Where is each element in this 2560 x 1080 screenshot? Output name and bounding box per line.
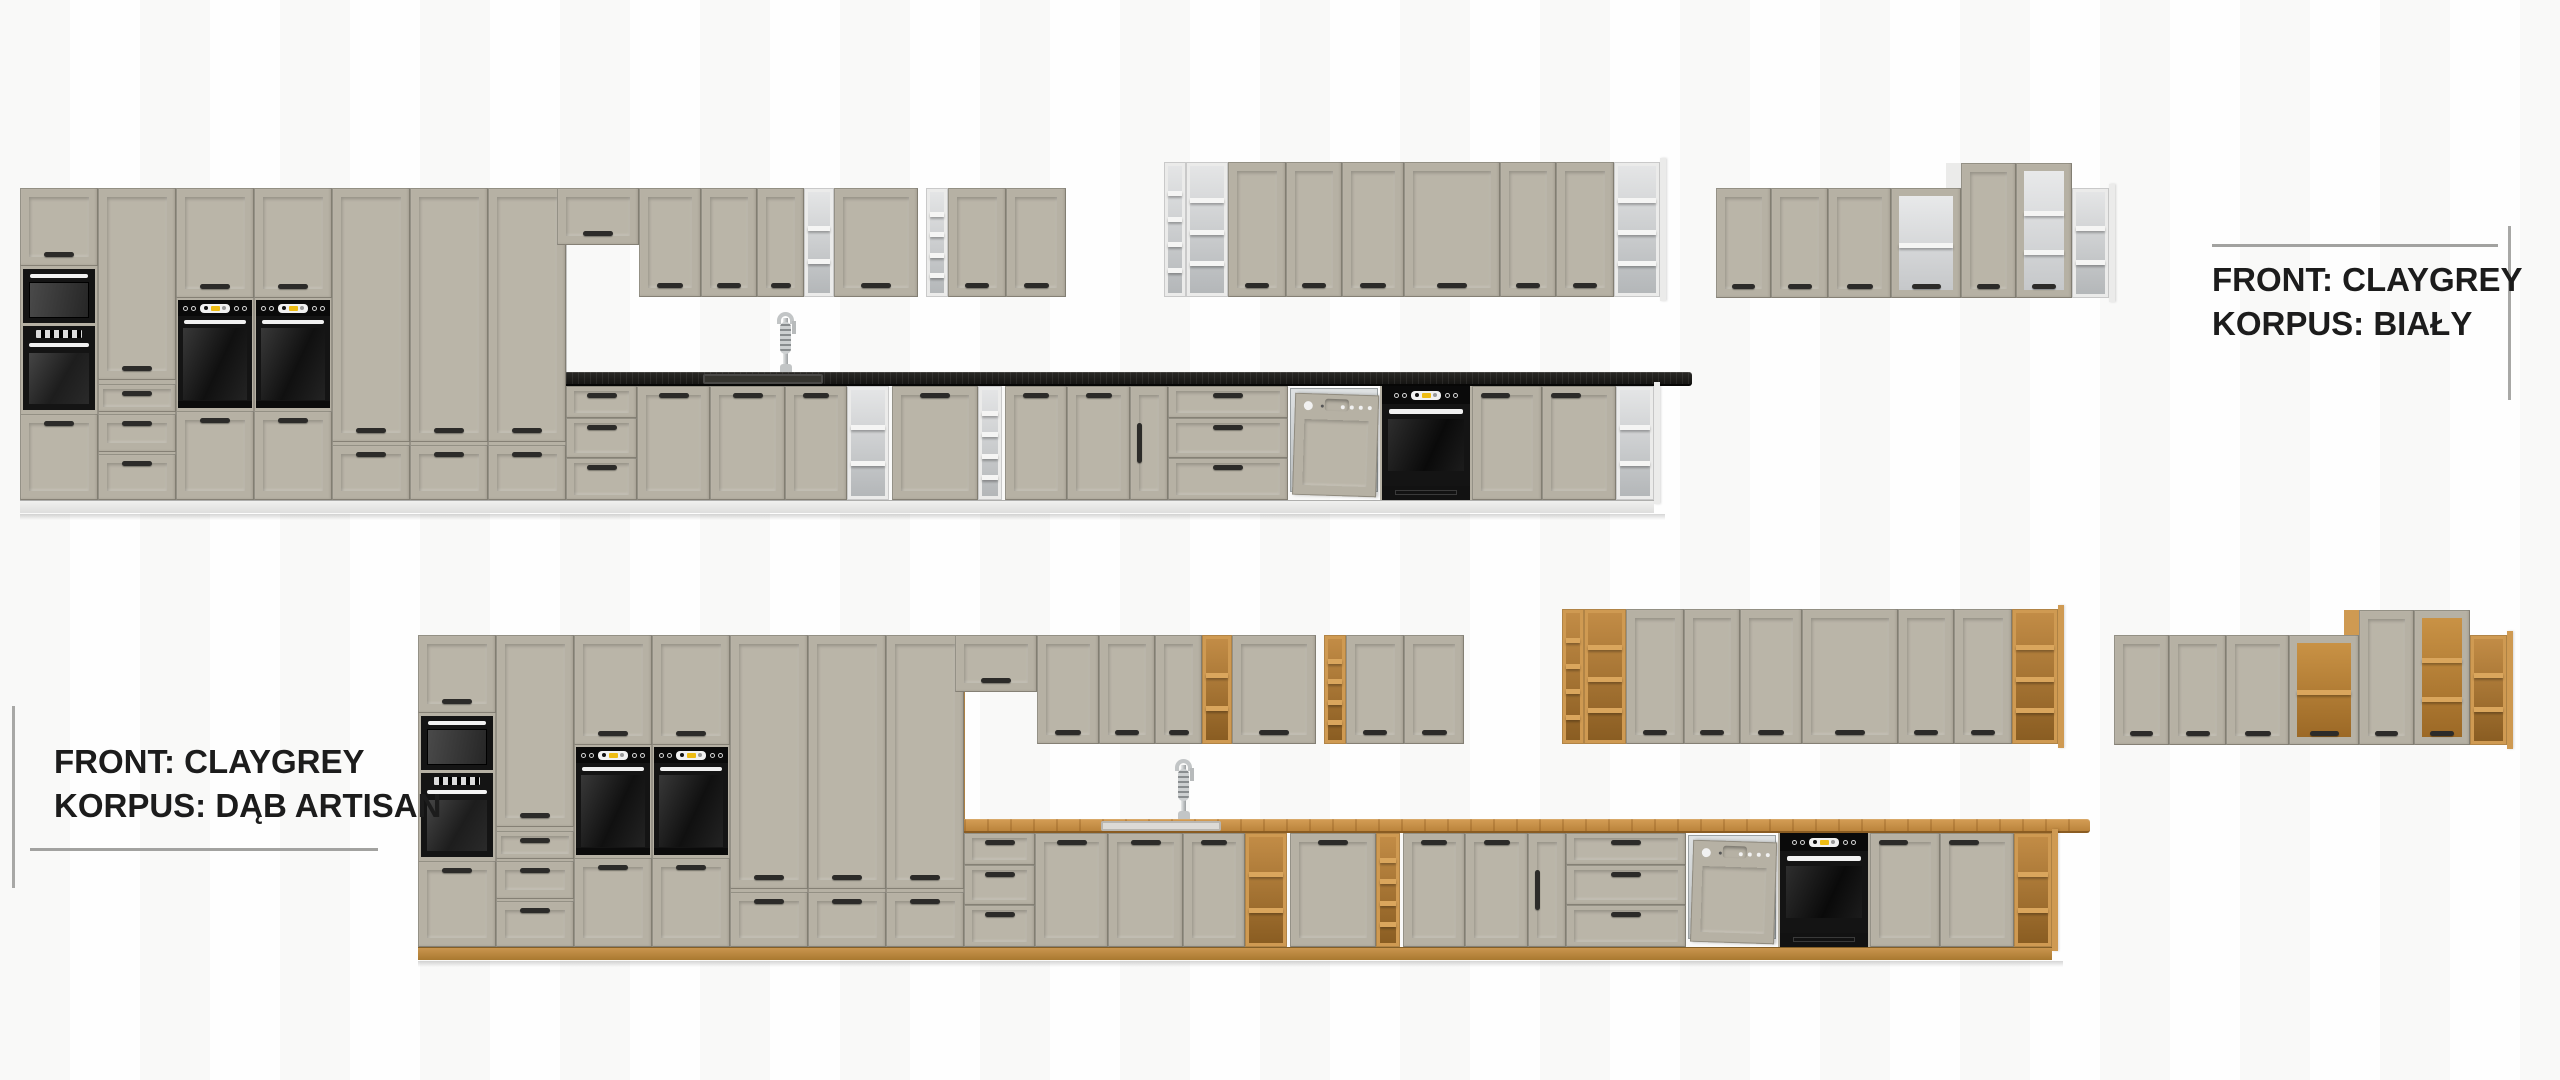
base-cabinet <box>710 386 785 500</box>
dishwasher-recess <box>1723 846 1747 859</box>
door-panel <box>1351 171 1395 288</box>
tall-oven-housing <box>574 635 652 947</box>
display-dot <box>620 753 624 757</box>
cabinet-door <box>808 635 886 889</box>
oven-housing <box>1380 386 1472 500</box>
shelf-board <box>1328 700 1342 705</box>
corner-open-shelf <box>2470 635 2507 745</box>
control-knob <box>1843 840 1848 845</box>
shelf-board <box>851 425 885 430</box>
plinth <box>418 947 964 960</box>
door-panel <box>1413 171 1491 288</box>
display-timer <box>211 306 220 311</box>
cabinet-handle <box>442 868 472 873</box>
drawer-front <box>1566 833 1686 865</box>
shelf-board <box>1328 659 1342 664</box>
cabinet-handle <box>587 393 617 398</box>
wall-cabinet <box>1802 609 1898 744</box>
dishwasher-knob <box>1304 401 1313 410</box>
base-cabinet <box>892 386 978 500</box>
cabinet-handle <box>1611 872 1641 877</box>
plinth <box>566 500 1654 513</box>
shelf-board <box>1190 261 1224 266</box>
door-panel <box>710 197 748 288</box>
dishwasher-panel <box>1302 419 1368 487</box>
door-panel <box>1749 618 1793 735</box>
wall-cabinet <box>834 188 918 297</box>
cabinet-handle <box>1086 393 1112 398</box>
wall-cabinet <box>2226 635 2289 745</box>
drawer-front <box>496 861 574 899</box>
cabinet-door <box>488 445 566 500</box>
shelf-interior <box>1249 837 1283 943</box>
door-panel <box>29 197 89 257</box>
cabinet-handle <box>1245 283 1269 288</box>
door-panel <box>1725 197 1762 289</box>
cabinet-handle <box>1055 730 1081 735</box>
cabinet-handle <box>676 731 706 736</box>
dishwasher-dot <box>1321 405 1324 408</box>
shelf-board <box>1190 198 1224 203</box>
shelf-board <box>982 411 998 416</box>
kitchen-set-korpus-dab-artisan <box>418 609 2518 969</box>
cabinet-door <box>730 635 808 889</box>
oven-drawer-strip <box>1780 933 1868 947</box>
dishwasher-button <box>1350 405 1354 409</box>
base-cabinet <box>1035 833 1108 947</box>
wall-cabinet <box>1954 609 2012 744</box>
cabinet-door <box>488 188 566 442</box>
wine-rack-cabinet <box>1562 609 1584 744</box>
drawer-front <box>566 418 637 458</box>
door-panel <box>2178 644 2217 736</box>
wall-cabinet <box>955 635 1037 692</box>
control-knob <box>1792 840 1797 845</box>
shelf-board <box>808 226 830 231</box>
shelf-board <box>2016 708 2054 713</box>
cabinet-door <box>410 188 488 442</box>
wall-cabinet <box>757 188 804 297</box>
cabinet-door <box>574 635 652 745</box>
cabinet-door <box>176 411 254 500</box>
cabinet-door <box>98 188 176 380</box>
wall-cabinet <box>1828 188 1891 298</box>
base-cabinet <box>785 386 847 500</box>
shelf-board <box>1588 677 1622 682</box>
cabinet-handle <box>2245 731 2271 736</box>
base-cabinet <box>1183 833 1245 947</box>
shelf-interior <box>930 192 944 293</box>
shelf-board <box>1190 230 1224 235</box>
plinth <box>20 500 566 513</box>
oven-window <box>581 775 645 847</box>
dishwasher-button <box>1757 853 1761 857</box>
door-panel <box>427 644 487 704</box>
door-panel <box>1237 171 1277 288</box>
drawer-front <box>566 458 637 500</box>
base-cabinet <box>637 386 710 500</box>
door-panel <box>2368 619 2405 736</box>
control-display <box>1411 391 1441 400</box>
door-panel <box>185 420 245 491</box>
cabinet-door <box>176 188 254 298</box>
base-drawer-cabinet <box>964 833 1035 947</box>
oven-window <box>29 353 89 404</box>
shelf-board <box>1168 191 1182 196</box>
cabinet-handle <box>910 875 940 880</box>
door-panel <box>1551 395 1607 491</box>
shelf-interior <box>1168 166 1182 293</box>
corner-open-shelf <box>2014 833 2052 947</box>
tall-pantry-cabinet <box>98 188 176 500</box>
glass-display-cabinet <box>2289 635 2359 745</box>
cabinet-handle <box>1259 730 1289 735</box>
base-drawer-cabinet <box>566 386 637 500</box>
dishwasher-button <box>1766 853 1770 857</box>
display-dot <box>282 306 286 310</box>
oven-bottom-band <box>654 848 728 855</box>
door-panel <box>1295 171 1333 288</box>
cabinet-handle <box>985 872 1015 877</box>
cabinet-handle <box>1360 283 1386 288</box>
kitchen-set-korpus-bialy <box>20 162 2120 522</box>
built-in-oven <box>178 300 252 408</box>
door-panel <box>2123 644 2160 736</box>
side-panel <box>2109 184 2115 302</box>
cabinet-handle <box>200 418 230 423</box>
shelf-board <box>1249 908 1283 913</box>
shelf-board <box>2297 690 2351 695</box>
wall-cabinet <box>1037 635 1099 744</box>
oven-window <box>659 775 723 847</box>
wall-cabinet <box>1556 162 1614 297</box>
door-panel <box>1299 842 1367 938</box>
side-panel <box>1660 158 1666 301</box>
shelf-board <box>1899 243 1953 248</box>
display-timer <box>1820 840 1829 845</box>
door-panel <box>661 867 721 938</box>
drawer-front <box>496 901 574 947</box>
display-dot <box>204 306 208 310</box>
cabinet-handle <box>1551 393 1581 398</box>
dishwasher-button <box>1368 406 1372 410</box>
open-shelf-cabinet <box>804 188 834 297</box>
dishwasher-recess <box>1325 399 1349 412</box>
oven-handle-bar <box>184 320 246 324</box>
oven-window <box>1786 866 1862 918</box>
shelf-board <box>2474 707 2503 712</box>
cabinet-handle <box>122 421 152 426</box>
drawer-front <box>964 865 1035 905</box>
cabinet-door <box>652 858 730 947</box>
wine-rack-cabinet <box>1164 162 1186 297</box>
wine-rack-cabinet <box>978 386 1002 500</box>
corner-open-shelf <box>1614 162 1660 297</box>
glass-interior <box>2422 618 2462 737</box>
door-panel <box>1192 842 1236 938</box>
drawer-front <box>98 384 176 412</box>
control-knob <box>1453 393 1458 398</box>
shelf-board <box>1168 268 1182 273</box>
drawer-front <box>1566 865 1686 905</box>
door-panel <box>817 644 877 880</box>
control-knob <box>589 753 594 758</box>
cabinet-handle <box>803 393 829 398</box>
door-panel <box>895 644 955 880</box>
base-cabinet <box>1108 833 1183 947</box>
cabinet-door <box>730 892 808 947</box>
cabinet-handle <box>1912 284 1941 289</box>
wall-cabinet <box>1716 188 1771 298</box>
cabinet-handle <box>2430 731 2454 736</box>
cabinet-door <box>808 892 886 947</box>
door-panel <box>263 420 323 491</box>
cabinet-door <box>332 445 410 500</box>
display-dot <box>1831 840 1835 844</box>
door-panel <box>1413 644 1455 735</box>
side-panel <box>2058 605 2064 748</box>
cabinet-handle <box>1137 423 1142 463</box>
door-panel <box>719 395 776 491</box>
cabinet-door <box>418 635 496 713</box>
faucet-base <box>1178 811 1190 819</box>
drawer-front <box>1168 386 1288 418</box>
tall-appliance-column <box>20 188 98 500</box>
door-panel <box>2235 644 2280 736</box>
shelf-board <box>1328 720 1342 725</box>
display-timer <box>289 306 298 311</box>
display-dot <box>680 753 684 757</box>
control-knob <box>261 306 266 311</box>
display-timer <box>609 753 618 758</box>
built-in-oven <box>256 300 330 408</box>
label-korpus-line: KORPUS: DĄB ARTISAN <box>54 784 441 828</box>
corner-open-shelf <box>1616 386 1654 500</box>
variant-label-dab-artisan: FRONT: CLAYGREY KORPUS: DĄB ARTISAN <box>54 740 441 828</box>
door-panel <box>1117 842 1174 938</box>
door-panel <box>1811 618 1889 735</box>
drawer-vent <box>1395 490 1457 495</box>
cabinet-handle <box>733 393 763 398</box>
wall-cabinet <box>639 188 701 297</box>
cabinet-handle <box>1484 840 1510 845</box>
faucet <box>769 312 799 372</box>
oven-control-panel <box>256 300 330 316</box>
drawer-front <box>98 454 176 500</box>
cabinet-handle <box>1024 283 1049 288</box>
base-drawer-cabinet <box>1566 833 1686 947</box>
oven-handle-bar <box>660 767 722 771</box>
tall-cabinet <box>332 188 410 500</box>
cabinet-handle <box>1169 730 1189 735</box>
cabinet-handle <box>1115 730 1139 735</box>
shelf-board <box>982 475 998 480</box>
cabinet-handle <box>587 465 617 470</box>
control-knob <box>1800 840 1805 845</box>
door-panel <box>1837 197 1882 289</box>
shelf-board <box>1566 664 1580 669</box>
cabinet-handle <box>754 875 784 880</box>
shelf-board <box>1380 858 1396 863</box>
control-knob <box>667 753 672 758</box>
door-panel <box>1241 644 1307 735</box>
tall-oven-housing <box>254 188 332 500</box>
cabinet-handle <box>1131 840 1161 845</box>
cabinet-handle <box>676 865 706 870</box>
open-shelf-cabinet <box>1186 162 1228 297</box>
shelf-board <box>1206 673 1228 678</box>
drawer-front <box>964 905 1035 947</box>
shelf-board <box>930 253 944 258</box>
cabinet-handle <box>44 421 74 426</box>
cabinet-handle <box>200 284 230 289</box>
control-knob <box>320 306 325 311</box>
sink <box>703 374 823 384</box>
oven-handle-bar <box>582 767 644 771</box>
wall-cabinet <box>1500 162 1556 297</box>
door-panel <box>107 197 167 371</box>
product-image-kitchen-sets: FRONT: CLAYGREY KORPUS: BIAŁY FRONT: CLA… <box>0 0 2560 1080</box>
glass-display-cabinet <box>2414 610 2470 745</box>
cabinet-handle <box>832 875 862 880</box>
faucet-spout <box>1190 768 1194 781</box>
cabinet-door <box>418 861 496 947</box>
drawer-front <box>566 386 637 418</box>
built-in-oven <box>23 326 95 410</box>
shelf-board <box>1328 679 1342 684</box>
wall-cabinet <box>948 188 1006 297</box>
cabinet-handle <box>2186 731 2210 736</box>
dishwasher-button <box>1748 852 1752 856</box>
cabinet-handle <box>1835 730 1865 735</box>
control-knob <box>632 753 637 758</box>
door-panel <box>107 463 167 491</box>
cabinet-handle <box>512 452 542 457</box>
cabinet-door <box>886 892 964 947</box>
base-cabinet <box>1528 833 1566 947</box>
drawer-vent <box>1793 937 1855 942</box>
wall-cabinet <box>701 188 757 297</box>
glass-display-cabinet <box>1891 188 1961 298</box>
display-dot <box>1415 393 1419 397</box>
control-knob <box>312 306 317 311</box>
label-rule-horizontal-bottom <box>30 848 378 851</box>
door-panel <box>957 197 997 288</box>
open-shelf-cabinet <box>1584 609 1626 744</box>
faucet-spring-coil <box>780 322 791 354</box>
cabinet-handle <box>1023 393 1049 398</box>
wall-cabinet <box>1228 162 1286 297</box>
cabinet-handle <box>1758 730 1784 735</box>
base-cabinet <box>1290 833 1376 947</box>
cabinet-handle <box>1879 840 1908 845</box>
cabinet-handle <box>1201 840 1227 845</box>
control-display <box>200 304 230 313</box>
microwave-handle-bar <box>30 274 88 278</box>
open-shelf-cabinet <box>1245 833 1287 947</box>
door-panel <box>1963 618 2003 735</box>
cabinet-handle <box>659 393 689 398</box>
base-cabinet <box>1005 386 1067 500</box>
control-knob <box>269 306 274 311</box>
control-display <box>598 751 628 760</box>
cabinet-door <box>496 635 574 827</box>
wine-rack-cabinet <box>926 188 948 297</box>
cabinet-handle <box>754 899 784 904</box>
shelf-board <box>808 259 830 264</box>
cabinet-handle <box>356 428 386 433</box>
wall-cabinet <box>2359 610 2414 745</box>
cabinet-handle <box>442 699 472 704</box>
shelf-board <box>1588 645 1622 650</box>
cabinet-door <box>332 188 410 442</box>
drawer-front <box>496 831 574 859</box>
oven-window <box>183 328 247 400</box>
shelf-interior <box>2474 639 2503 741</box>
wall-cabinet <box>1006 188 1066 297</box>
side-panel <box>2052 829 2058 951</box>
wall-cabinet <box>2169 635 2226 745</box>
cabinet-door <box>652 635 730 745</box>
cabinet-handle <box>1573 283 1597 288</box>
door-panel <box>1780 197 1819 289</box>
control-knob <box>659 753 664 758</box>
drawer-front <box>1566 905 1686 947</box>
cabinet-handle <box>981 678 1011 683</box>
door-panel <box>661 644 721 736</box>
cabinet-handle <box>520 813 550 818</box>
shelf-board <box>2016 645 2054 650</box>
wall-cabinet <box>1740 609 1802 744</box>
wine-rack-cabinet <box>1376 833 1400 947</box>
control-knob <box>581 753 586 758</box>
cabinet-handle <box>598 731 628 736</box>
shelf-board <box>1620 425 1650 430</box>
cabinet-handle <box>1971 730 1995 735</box>
oven-handle-bar <box>29 343 89 347</box>
shelf-board <box>2422 658 2462 663</box>
door-panel <box>1044 842 1099 938</box>
glass-display-cabinet <box>2016 163 2072 298</box>
dishwasher <box>1292 393 1379 498</box>
display-timer <box>687 753 696 758</box>
microwave-handle-bar <box>428 721 486 725</box>
shelf-board <box>2018 872 2048 877</box>
oven-bottom-band <box>576 848 650 855</box>
cabinet-handle <box>2032 284 2056 289</box>
corner-open-shelf <box>2072 188 2109 298</box>
door-panel <box>1164 644 1193 735</box>
base-cabinet <box>1465 833 1528 947</box>
door-panel <box>341 197 401 433</box>
wall-cabinet <box>1342 162 1404 297</box>
tall-oven-housing <box>176 188 254 500</box>
cabinet-door <box>20 188 98 266</box>
label-rule-vertical-bottom <box>12 706 15 888</box>
wall-cabinet <box>1898 609 1954 744</box>
oven-housing <box>1778 833 1870 947</box>
door-panel <box>185 197 245 289</box>
oven-drawer-strip <box>1382 486 1470 500</box>
wine-rack-cabinet <box>1324 635 1346 744</box>
wall-cabinet <box>1684 609 1740 744</box>
door-panel <box>583 867 643 938</box>
cabinet-door <box>254 188 332 298</box>
drawer-front <box>1168 458 1288 500</box>
base-cabinet <box>1940 833 2014 947</box>
shelf-board <box>1206 706 1228 711</box>
cabinet-handle <box>1914 730 1938 735</box>
